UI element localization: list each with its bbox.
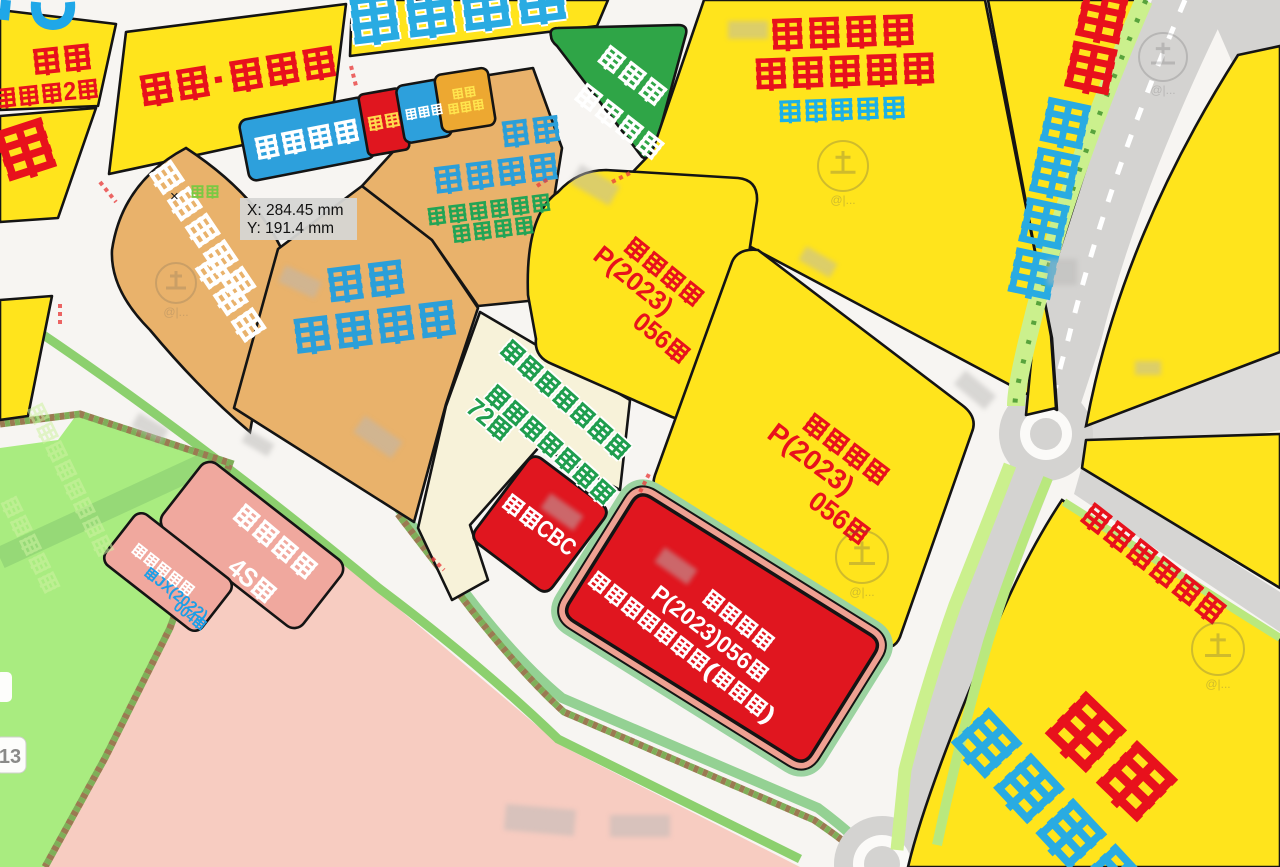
svg-text:@|...: @|... [163, 305, 188, 319]
svg-text:×: × [170, 188, 179, 205]
svg-text:13: 13 [0, 746, 21, 768]
svg-text:@|...: @|... [1205, 677, 1230, 691]
svg-text:@|...: @|... [849, 585, 874, 599]
svg-text:X: 284.45 mm: X: 284.45 mm [247, 202, 344, 219]
svg-text:@|...: @|... [1150, 83, 1175, 97]
svg-text:Y: 191.4 mm: Y: 191.4 mm [247, 220, 334, 237]
svg-text:@|...: @|... [830, 193, 855, 207]
